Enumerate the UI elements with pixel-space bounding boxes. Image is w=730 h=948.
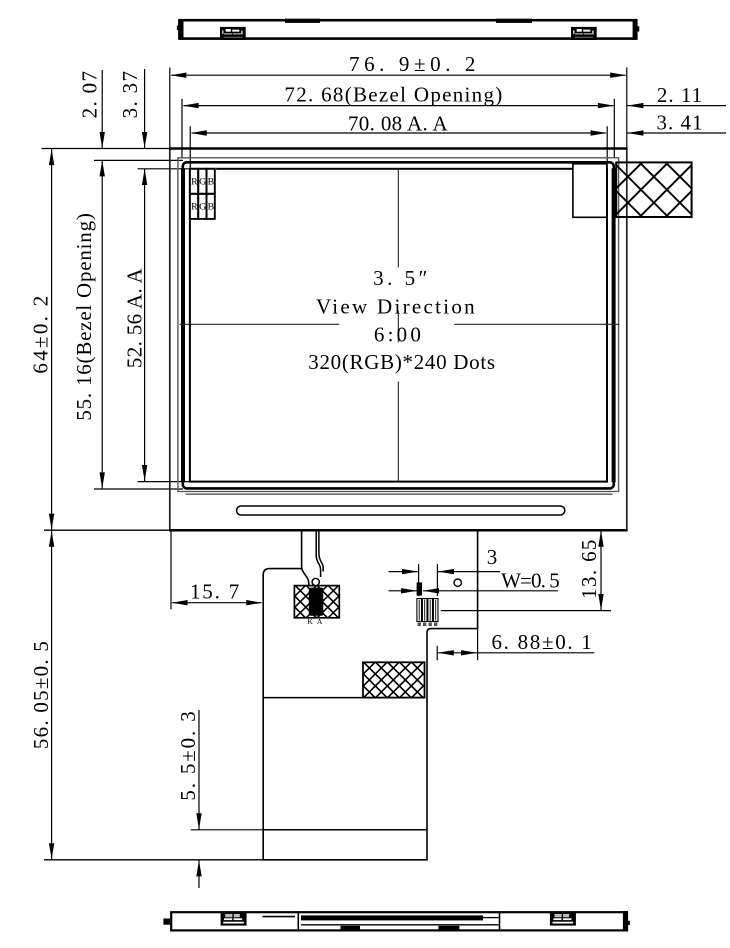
svg-text:B: B (208, 177, 215, 188)
svg-text:R: R (191, 177, 198, 188)
svg-text:2. 11: 2. 11 (657, 83, 703, 107)
svg-text:70. 08 A. A: 70. 08 A. A (348, 112, 449, 136)
svg-text:15. 7: 15. 7 (190, 580, 241, 604)
svg-text:K A: K A (308, 617, 324, 626)
svg-text:56. 05±0. 5: 56. 05±0. 5 (29, 640, 53, 749)
svg-text:3. 41: 3. 41 (657, 110, 704, 134)
svg-text:3: 3 (487, 545, 498, 569)
svg-text:72. 68(Bezel Opening): 72. 68(Bezel Opening) (284, 82, 503, 106)
svg-text:View Direction: View Direction (316, 294, 477, 318)
svg-text:5. 5±0. 3: 5. 5±0. 3 (176, 709, 200, 800)
svg-text:13. 65: 13. 65 (577, 538, 601, 599)
svg-text:3. 37: 3. 37 (118, 70, 142, 119)
svg-text:W=0. 5: W=0. 5 (501, 569, 559, 593)
svg-text:320(RGB)*240 Dots: 320(RGB)*240 Dots (308, 350, 496, 374)
svg-text:52. 56 A. A: 52. 56 A. A (123, 267, 147, 368)
svg-text:R: R (191, 202, 198, 213)
svg-text:G: G (199, 202, 206, 213)
svg-text:6:00: 6:00 (374, 323, 424, 347)
svg-text:3. 5″: 3. 5″ (373, 266, 431, 290)
svg-text:76. 9±0. 2: 76. 9±0. 2 (349, 52, 480, 76)
svg-text:2. 07: 2. 07 (78, 70, 102, 119)
svg-text:B: B (208, 202, 215, 213)
svg-text:55. 16(Bezel Opening): 55. 16(Bezel Opening) (72, 212, 96, 420)
svg-text:6. 88±0. 1: 6. 88±0. 1 (491, 630, 593, 654)
svg-text:G: G (199, 177, 206, 188)
svg-text:64±0. 2: 64±0. 2 (29, 293, 53, 373)
